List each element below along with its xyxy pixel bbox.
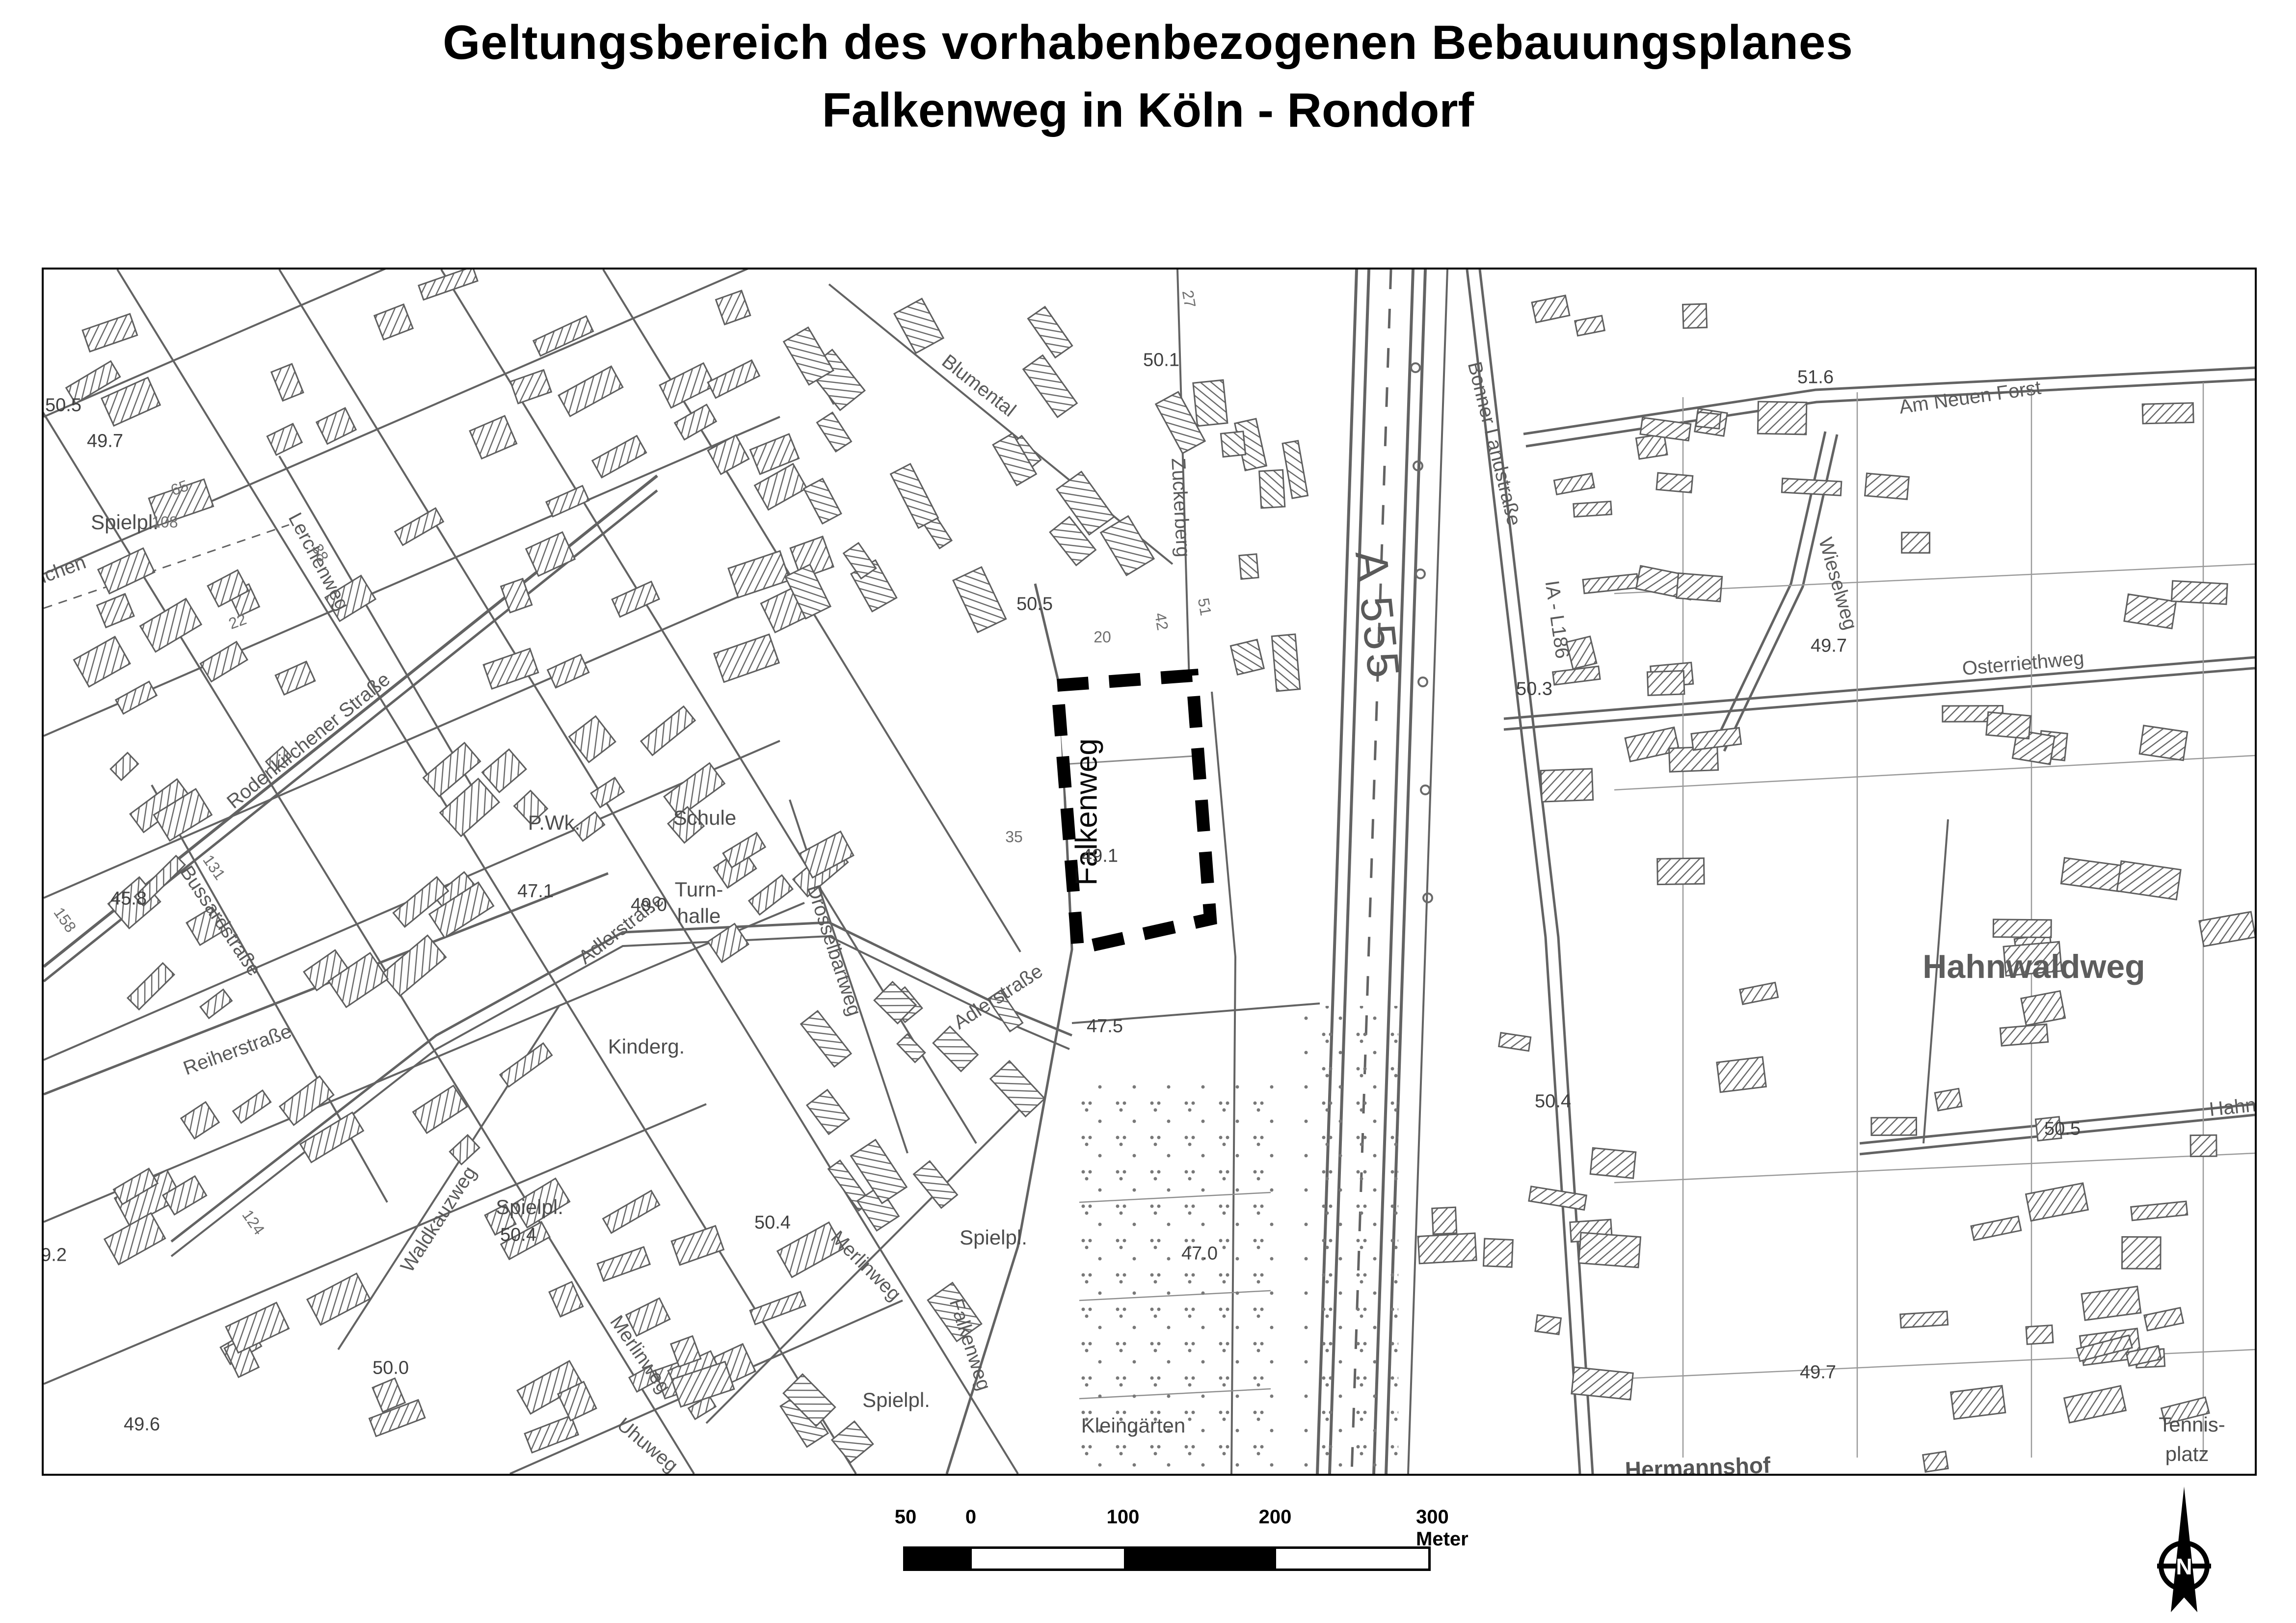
scale-bar-tick-label: 50 [895,1506,917,1528]
map-label: Falkenweg [945,1296,995,1393]
map-label: platz [2165,1442,2209,1466]
north-arrow-icon: N [2157,1484,2211,1621]
map-label: 51 [1194,596,1215,617]
map-label: Reiherstraße [181,1020,295,1080]
scale-bar-segments [903,1546,1431,1571]
map-label: 49.0 [631,895,667,916]
map-label: 65 [168,477,191,500]
map-label: 50.5 [45,395,81,416]
map-label: 50.4 [754,1213,791,1234]
map-label: 50.1 [1143,350,1179,371]
map-label: Hahn [2208,1094,2257,1121]
map-label: 50.0 [373,1358,409,1379]
map-label: Bussardstraße [176,862,266,980]
scale-bar-segment [906,1549,972,1569]
scale-bar-segment [972,1549,1124,1569]
map-label: Rodenkirchener Straße [223,668,395,813]
map-label: derpfädchen [42,551,89,609]
map-label: Turn- [675,878,723,901]
map-label: Kinderg. [608,1035,685,1058]
map-label: 158 [50,904,80,936]
map-label: Bonner Landstraße [1463,359,1525,528]
map-label: 49.7 [1811,636,1847,657]
map-label: 50.3 [1516,679,1552,700]
map-label: Spielpl. [960,1226,1027,1249]
scale-bar-segment [1124,1549,1276,1569]
map-label: Zuckerberg [1167,458,1194,558]
map-label: A 555 [1345,548,1410,683]
plan-area-elevation: 49.1 [1082,846,1118,867]
map-label: 50.4 [1535,1091,1571,1112]
map-label: 108 [152,514,178,532]
map-label: 49.6 [124,1414,160,1435]
page-title-line1: Geltungsbereich des vorhabenbezogenen Be… [0,15,2296,70]
map-label: Blumental [937,351,1020,422]
map-label: Kleingärten [1081,1414,1185,1437]
page: { "title": { "line1": "Geltungsbereich d… [0,0,2296,1623]
map-label: 50.5 [2044,1119,2081,1140]
map-label: Spielpl. [496,1195,563,1219]
map-label: 49.2 [42,1245,67,1266]
map-label: Osterriethweg [1961,648,2085,680]
north-arrow-label: N [2176,1554,2192,1579]
map-label: 50.5 [1016,594,1053,615]
scale-bar-tick-label: 100 [1107,1506,1140,1528]
map-label: halle [677,904,721,928]
map-label: 35 [1005,828,1023,846]
scale-bar-segment [1276,1549,1428,1569]
map-label: 20 [1094,628,1111,647]
scale-bar-tick-label: 0 [965,1506,976,1528]
map-label: Waldkauzweg [397,1163,481,1276]
map-label: Spielpl. [862,1388,930,1412]
scale-bar-tick-label: 300 Meter [1416,1506,1499,1550]
map-label: Schule [673,806,736,830]
map-label: Uhuweg [613,1414,682,1476]
map-label: 42 [1151,611,1172,631]
map-label: Tennis- [2159,1413,2225,1436]
map-label: 47.0 [1181,1244,1218,1265]
map-label: 124 [239,1207,268,1239]
map-label: Wieselweg [1814,535,1862,632]
map-label: Merlinweg [827,1227,906,1306]
map-label: Hermannshof [1625,1452,1771,1476]
map-label: Merlinweg [605,1311,674,1397]
map-label: 22 [226,610,249,633]
map-label: P.Wk. [528,811,581,835]
map-label: Adlerstraße [950,960,1047,1034]
map-label: 47.1 [517,881,554,902]
map-label: 50.4 [500,1225,536,1246]
map-label: Spielpl. [91,511,159,534]
map-labels-layer: LerchenwegBlumentalderpfädchenReiherstra… [44,270,2255,1474]
map-label: Am Neuen Forst [1898,377,2043,418]
scale-bar-tick-label: 200 [1259,1506,1292,1528]
map-label: 51.6 [1797,367,1834,388]
map-frame: LerchenwegBlumentalderpfädchenReiherstra… [42,268,2257,1476]
map-label: 47.5 [1087,1016,1123,1037]
page-title-line2: Falkenweg in Köln - Rondorf [0,82,2296,138]
map-label: 49.7 [1800,1362,1836,1383]
map-label: 45.8 [110,889,147,910]
scale-bar: 500100200300 Meter [903,1506,1541,1575]
map-label: 27 [1178,289,1200,309]
map-label: IA - L186 [1541,579,1574,660]
map-label: Hahnwaldweg [1922,947,2145,986]
map-label: Drosselbartweg [802,882,866,1019]
map-label: 49.7 [87,431,123,452]
